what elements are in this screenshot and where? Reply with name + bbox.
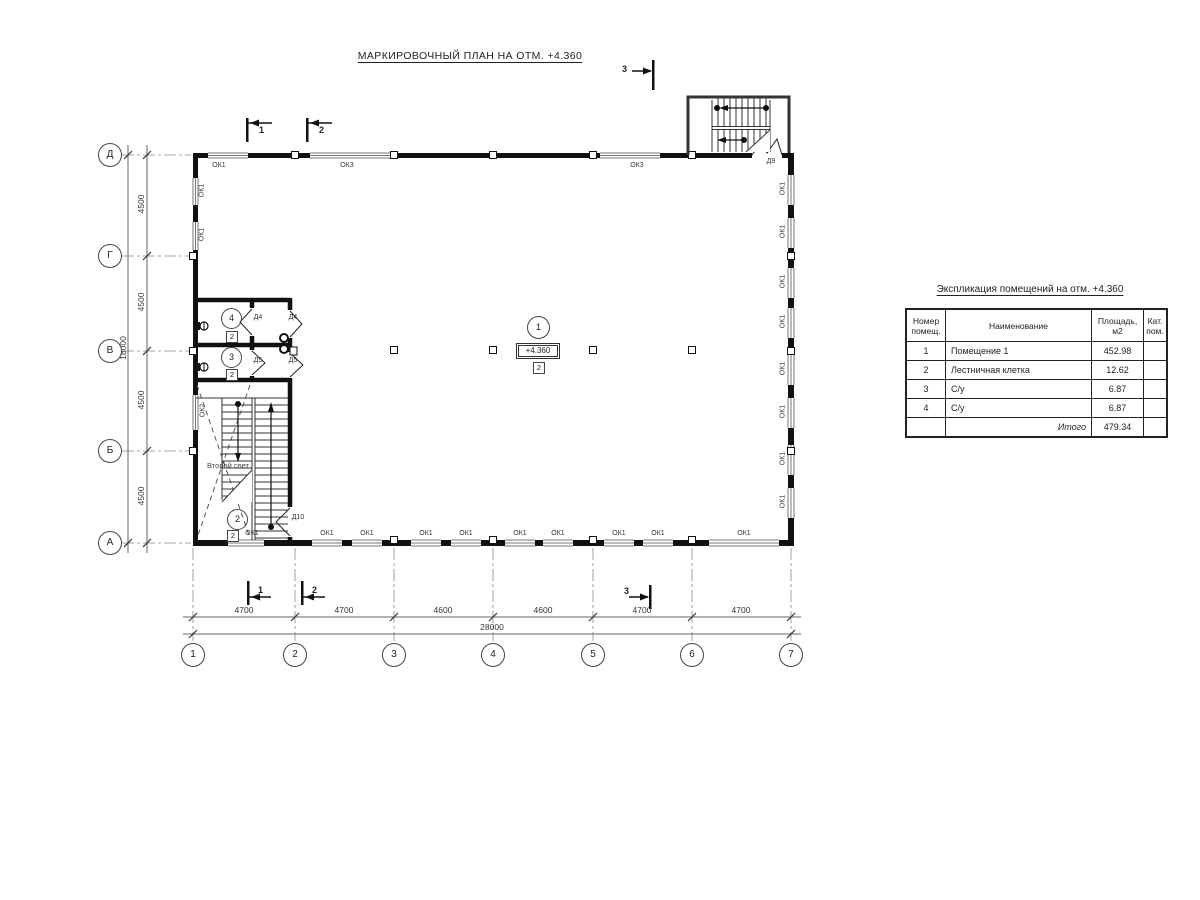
cell-category: [1144, 380, 1168, 399]
window-label: ОК1: [505, 530, 535, 537]
table-total-row: Итого 479.34: [906, 418, 1167, 438]
room-category-4: 2: [226, 331, 238, 343]
window-label: ОК1: [729, 530, 759, 537]
dimension-value: 4500: [136, 380, 146, 420]
col-header-number: Номерпомещ.: [906, 309, 946, 342]
window-label: ОК1: [411, 530, 441, 537]
col-header-name: Наименование: [946, 309, 1092, 342]
window-label: ОК1: [780, 444, 787, 474]
window-label: ОК1: [312, 530, 342, 537]
window-label: ОК1: [780, 217, 787, 247]
dimension-value: 4500: [136, 282, 146, 322]
window-label: ОК1: [543, 530, 573, 537]
cell-name: Помещение 1: [946, 342, 1092, 361]
dimension-value: 4700: [224, 605, 264, 615]
cell-number: 3: [906, 380, 946, 399]
window-label: ОК3: [332, 162, 362, 169]
cell-number: 2: [906, 361, 946, 380]
window-label: ОК3: [622, 162, 652, 169]
dimension-value: 4600: [523, 605, 563, 615]
axis-bubble-3: 3: [382, 643, 406, 667]
cell-category: [1144, 361, 1168, 380]
window-label: ОК2: [200, 396, 207, 426]
dimension-value: 4700: [622, 605, 662, 615]
window-label: ОК1: [780, 174, 787, 204]
explication-table: Номерпомещ. Наименование Площадь, м2 Кат…: [905, 308, 1168, 438]
window-label: ОК1: [780, 307, 787, 337]
window-label: ОК1: [352, 530, 382, 537]
dimension-value: 4500: [136, 184, 146, 224]
cell-name: С/у: [946, 399, 1092, 418]
door-label: Д10: [283, 514, 313, 521]
cell-category: [1144, 342, 1168, 361]
window-label: ОК1: [780, 397, 787, 427]
section-mark-2-bottom: 2: [312, 585, 317, 595]
cell-category: [1144, 399, 1168, 418]
dimension-ticks: [124, 151, 795, 638]
door-label: Д9: [756, 158, 786, 165]
dimension-total: 28000: [472, 622, 512, 632]
axis-bubble-1: 1: [181, 643, 205, 667]
window-label: ОК1: [780, 354, 787, 384]
col-header-category: Кат.пом.: [1144, 309, 1168, 342]
room-number-3: 3: [221, 347, 242, 368]
table-row: 1 Помещение 1 452.98: [906, 342, 1167, 361]
col-header-area: Площадь, м2: [1092, 309, 1144, 342]
window-label: ОК1: [237, 530, 267, 537]
cell-area: 452.98: [1092, 342, 1144, 361]
section-mark-2-top: 2: [319, 125, 324, 135]
total-value: 479.34: [1092, 418, 1144, 438]
axis-bubble-b: Б: [98, 439, 122, 463]
level-mark: +4.360: [518, 345, 558, 357]
window-label: ОК1: [451, 530, 481, 537]
drawing-canvas: МАРКИРОВОЧНЫЙ ПЛАН НА ОТМ. +4.360 1 2 3 …: [0, 0, 1200, 900]
section-mark-1-top: 1: [259, 125, 264, 135]
door-symbols: [240, 139, 782, 536]
exterior-stair-enclosure: [688, 97, 789, 155]
axis-bubble-5: 5: [581, 643, 605, 667]
window-label: ОК1: [643, 530, 673, 537]
dimension-value: 4700: [721, 605, 761, 615]
door-label: Д4: [278, 314, 308, 321]
cell-number: 1: [906, 342, 946, 361]
second-light-note: Второй свет: [198, 461, 258, 470]
cell-number: 4: [906, 399, 946, 418]
window-label: ОК1: [780, 267, 787, 297]
room-category-2: 2: [227, 530, 239, 542]
axis-bubble-v: В: [98, 339, 122, 363]
room-category-1: 2: [533, 362, 545, 374]
window-label: ОК1: [199, 220, 206, 250]
dimension-lines: [128, 145, 801, 634]
total-label: Итого: [946, 418, 1092, 438]
level-mark-box: +4.360: [516, 343, 560, 359]
table-row: 2 Лестничная клетка 12.62: [906, 361, 1167, 380]
dimension-value: 4500: [136, 476, 146, 516]
section-mark-1-bottom: 1: [258, 585, 263, 595]
room-number-1: 1: [527, 316, 550, 339]
floor-plan-drawing: [0, 0, 1200, 900]
table-row: 4 С/у 6.87: [906, 399, 1167, 418]
table-row: 3 С/у 6.87: [906, 380, 1167, 399]
axis-bubble-4: 4: [481, 643, 505, 667]
cell-name: С/у: [946, 380, 1092, 399]
section-mark-3-bottom: 3: [624, 586, 629, 596]
room-category-3: 2: [226, 369, 238, 381]
room-number-4: 4: [221, 308, 242, 329]
door-label: Д5: [243, 357, 273, 364]
axis-bubble-2: 2: [283, 643, 307, 667]
cell-area: 12.62: [1092, 361, 1144, 380]
door-label: Д5: [278, 357, 308, 364]
cell-area: 6.87: [1092, 399, 1144, 418]
axis-bubble-7: 7: [779, 643, 803, 667]
axis-bubble-g: Г: [98, 244, 122, 268]
window-label: ОК1: [780, 487, 787, 517]
section-mark-3-top: 3: [622, 64, 627, 74]
room-explication: Экспликация помещений на отм. +4.360 Ном…: [905, 284, 1155, 438]
dimension-value: 4600: [423, 605, 463, 615]
axis-bubble-6: 6: [680, 643, 704, 667]
table-title: Экспликация помещений на отм. +4.360: [905, 284, 1155, 295]
door-label: Д4: [243, 314, 273, 321]
window-label: ОК1: [204, 162, 234, 169]
cell-number: [906, 418, 946, 438]
axis-bubble-d: Д: [98, 143, 122, 167]
cell-category: [1144, 418, 1168, 438]
cell-name: Лестничная клетка: [946, 361, 1092, 380]
drawing-title: МАРКИРОВОЧНЫЙ ПЛАН НА ОТМ. +4.360: [350, 50, 590, 62]
dimension-value: 4700: [324, 605, 364, 615]
room-number-2: 2: [227, 509, 248, 530]
section-marks: [246, 60, 655, 609]
window-label: ОК1: [604, 530, 634, 537]
cell-area: 6.87: [1092, 380, 1144, 399]
axis-bubble-a: А: [98, 531, 122, 555]
window-label: ОК1: [199, 176, 206, 206]
